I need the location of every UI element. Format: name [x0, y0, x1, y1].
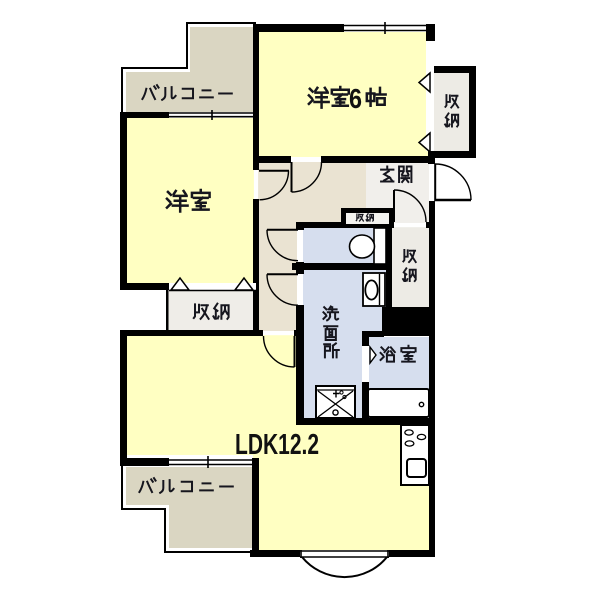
svg-text:6: 6 [349, 83, 362, 114]
svg-text:LDK12.2: LDK12.2 [235, 429, 319, 461]
